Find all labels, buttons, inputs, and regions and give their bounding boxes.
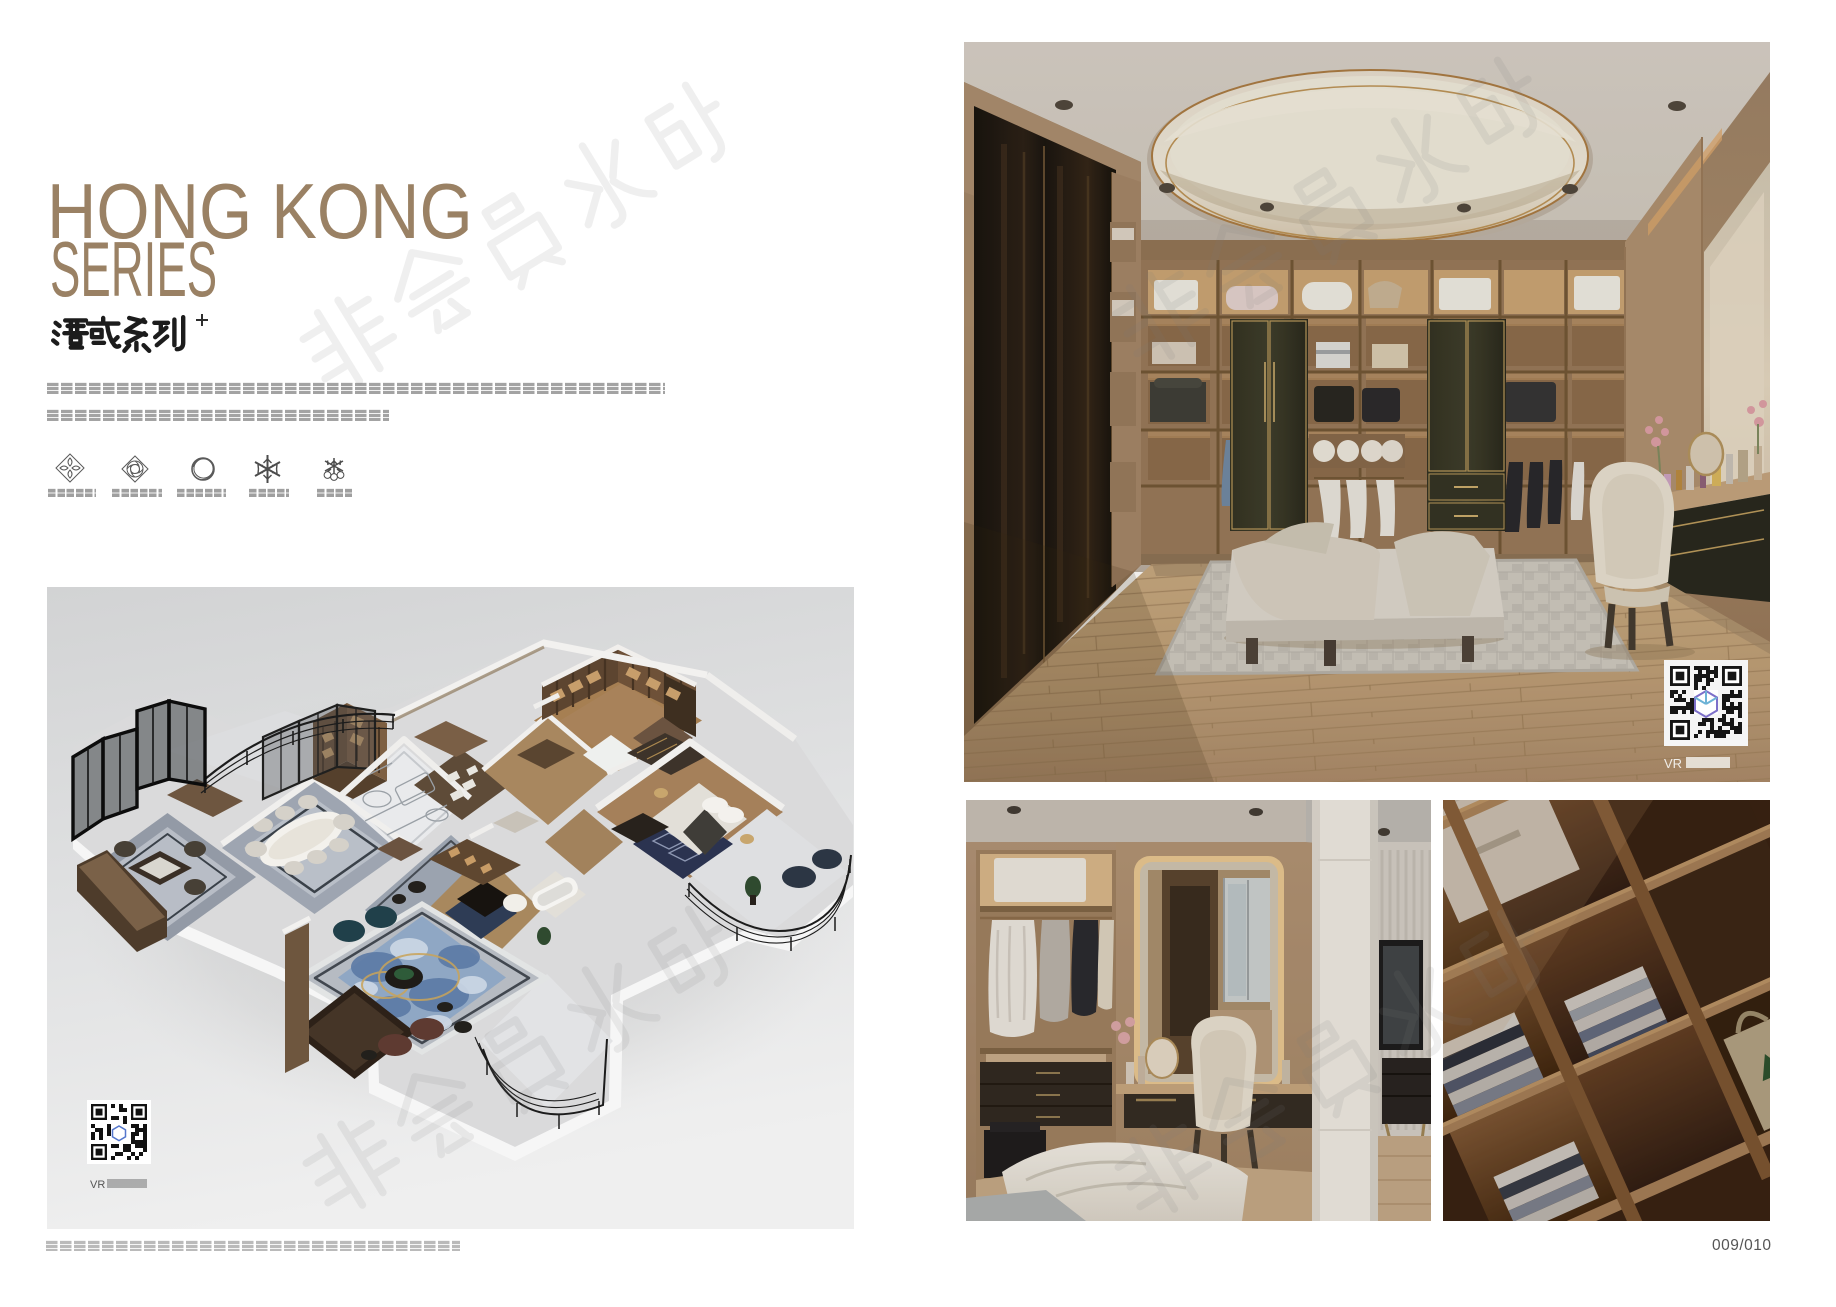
svg-text:VR: VR	[1664, 756, 1682, 771]
svg-text:VR: VR	[90, 1179, 105, 1191]
